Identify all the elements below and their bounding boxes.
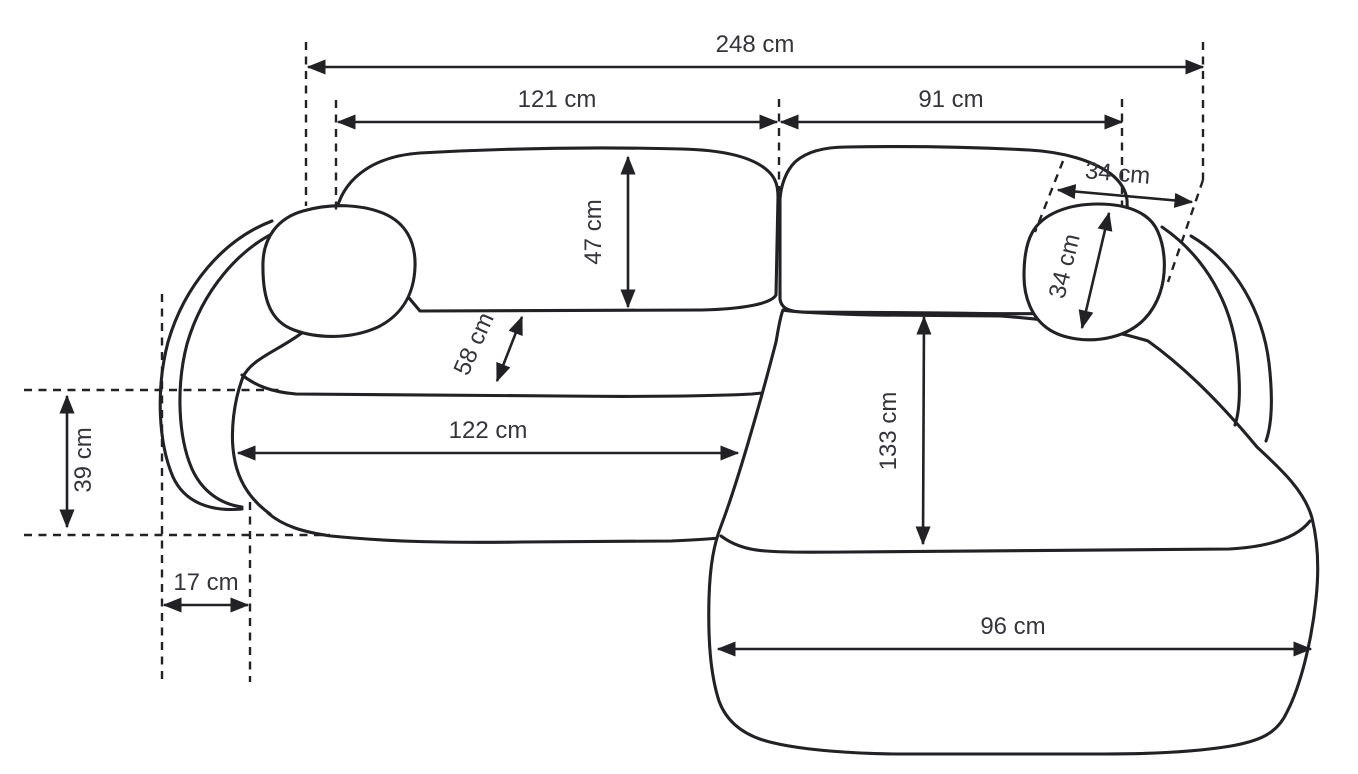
dim-left-section-width: 121 cm bbox=[338, 86, 777, 122]
dim-chaise-length-label: 133 cm bbox=[875, 392, 902, 471]
dim-headrest-width-label: 34 cm bbox=[1084, 157, 1151, 190]
dim-chaise-length-arrow bbox=[923, 317, 924, 544]
sofa-dimension-diagram-page: 248 cm 121 cm 91 cm 47 cm 58 cm 34 cm bbox=[0, 0, 1358, 774]
dim-chaise-width-label: 96 cm bbox=[980, 613, 1045, 640]
left-headrest-pillow bbox=[263, 206, 415, 337]
construction-line-headrest-right-slant bbox=[1168, 180, 1203, 282]
dim-total-width: 248 cm bbox=[308, 31, 1203, 67]
dim-seat-width-label: 122 cm bbox=[449, 417, 528, 444]
dim-seat-depth-arrow bbox=[497, 317, 522, 381]
left-armrest-front-edge bbox=[232, 332, 303, 514]
sofa-dimension-diagram: 248 cm 121 cm 91 cm 47 cm 58 cm 34 cm bbox=[0, 0, 1358, 774]
dim-right-section-width-label: 91 cm bbox=[918, 86, 983, 113]
dim-seat-depth-label: 58 cm bbox=[449, 309, 500, 380]
dim-seat-depth: 58 cm bbox=[449, 309, 522, 381]
dim-seat-width: 122 cm bbox=[238, 417, 738, 453]
sofa-outline bbox=[160, 147, 1317, 754]
left-seat-front-line bbox=[242, 375, 762, 396]
dim-armrest-width: 17 cm bbox=[164, 569, 248, 605]
dim-total-width-label: 248 cm bbox=[716, 31, 795, 58]
dim-armrest-width-label: 17 cm bbox=[173, 569, 238, 596]
dim-armrest-side-depth-label: 39 cm bbox=[70, 427, 97, 492]
left-base-line bbox=[268, 513, 719, 542]
dim-left-section-width-label: 121 cm bbox=[518, 86, 597, 113]
dim-right-section-width: 91 cm bbox=[781, 86, 1122, 122]
left-armrest-outer-edge bbox=[160, 221, 272, 509]
dim-armrest-side-depth: 39 cm bbox=[67, 396, 97, 527]
dim-backrest-depth-label: 47 cm bbox=[580, 199, 607, 264]
chaise-outline bbox=[709, 310, 1318, 754]
